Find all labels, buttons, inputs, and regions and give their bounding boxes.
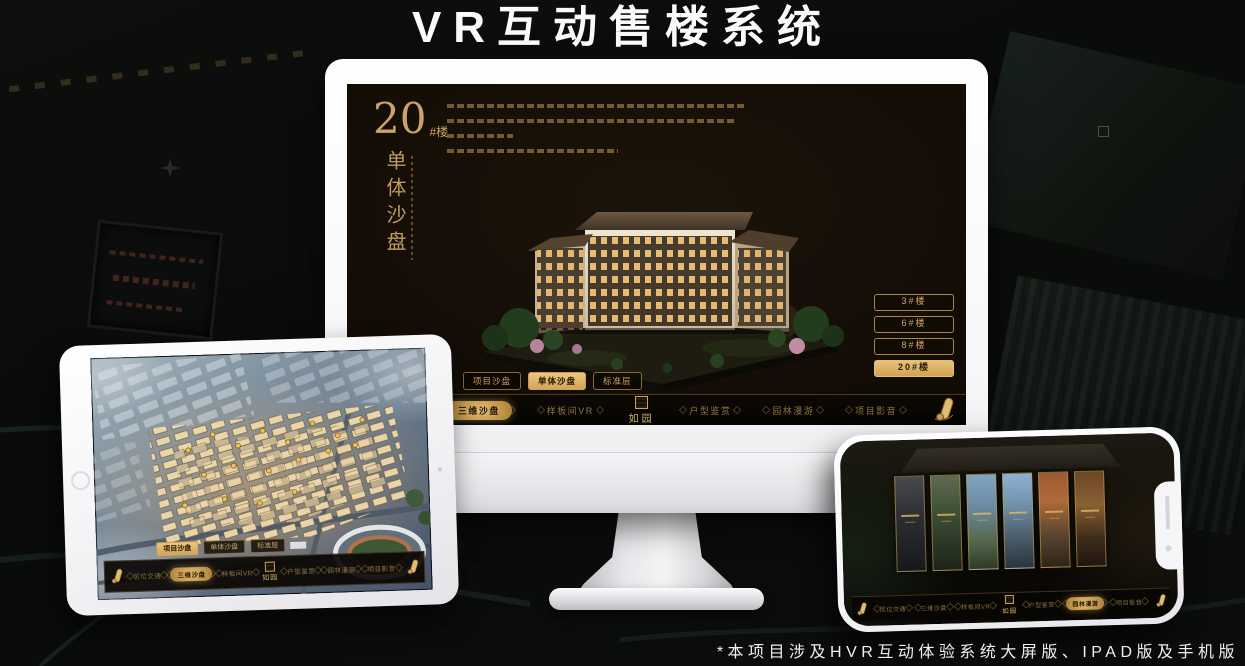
subtab-standard-floor[interactable]: 标准层: [250, 538, 285, 553]
subtab-standard-floor[interactable]: 标准层: [593, 372, 642, 390]
brand-logo: 如园: [1002, 595, 1018, 615]
subtab-single-sandbox[interactable]: 单体沙盘: [203, 539, 245, 554]
nav-showroom-vr[interactable]: 样板间VR: [219, 565, 256, 580]
description-text: [447, 104, 747, 164]
scroll-icon[interactable]: [405, 558, 421, 576]
scene-panel[interactable]: [1038, 471, 1071, 568]
scene-panel[interactable]: [966, 473, 999, 570]
nav-location-traffic[interactable]: 区位交通: [877, 601, 909, 615]
scale-indicator: [290, 541, 306, 548]
seal-icon: [265, 561, 275, 571]
nav-unit-appreciation[interactable]: 户型鉴赏: [284, 563, 318, 578]
nav-project-media[interactable]: 项目影音: [1113, 595, 1145, 609]
nav-showroom-vr[interactable]: 样板间VR: [541, 401, 600, 420]
floor-button-8[interactable]: 8#楼: [874, 338, 954, 355]
seal-icon: [635, 396, 648, 409]
camera-dot: [1165, 545, 1171, 551]
monitor-base: [549, 588, 764, 610]
nav-location-traffic[interactable]: 区位交通: [130, 568, 164, 583]
footer-note: *本项目涉及HVR互动体验系统大屏版、IPAD版及手机版: [717, 638, 1239, 662]
block-heading: 20 #楼: [373, 98, 448, 140]
ipad-device: 项目沙盘 单体沙盘 标准层 区位交通 三维沙盘 样板间VR 如园 户型鉴赏 园林…: [59, 334, 459, 616]
floor-selector: 3#楼 6#楼 8#楼 20#楼: [874, 294, 954, 377]
floor-button-20[interactable]: 20#楼: [874, 360, 954, 377]
brand-logo: 如园: [262, 561, 279, 582]
block-subtitle: 单体沙盘: [381, 150, 410, 258]
scene-panel[interactable]: [930, 474, 963, 571]
nav-project-media[interactable]: 项目影音: [364, 561, 398, 576]
sandbox-sub-tabs: 项目沙盘 单体沙盘 标准层: [463, 372, 642, 390]
nav-3d-sandbox[interactable]: 三维沙盘: [446, 401, 512, 420]
page-title: VR互动售楼系统: [0, 0, 1245, 56]
brand-logo: 如园: [629, 396, 655, 425]
speaker-icon: [1165, 495, 1170, 529]
promo-canvas: VR互动售楼系统 20 #楼 单体沙盘: [0, 0, 1245, 666]
nav-3d-sandbox[interactable]: 三维沙盘: [917, 600, 949, 614]
scene-panels: [894, 470, 1107, 572]
scene-panel[interactable]: [1074, 470, 1107, 567]
block-suffix: #楼: [429, 123, 448, 140]
subtab-project-sandbox[interactable]: 项目沙盘: [463, 372, 521, 390]
nav-unit-appreciation[interactable]: 户型鉴赏: [1026, 597, 1058, 611]
floor-button-3[interactable]: 3#楼: [874, 294, 954, 311]
nav-garden-roam[interactable]: 园林漫游: [324, 562, 358, 577]
scene-panel[interactable]: [1002, 472, 1035, 569]
building-render: [467, 156, 857, 391]
ipad-app: 项目沙盘 单体沙盘 标准层 区位交通 三维沙盘 样板间VR 如园 户型鉴赏 园林…: [90, 348, 432, 600]
subtitle-divider: [411, 156, 413, 260]
phone-navbar: 区位交通 三维沙盘 样板间VR 如园 户型鉴赏 园林漫游 项目影音: [852, 588, 1171, 622]
scroll-icon[interactable]: [932, 397, 956, 423]
scroll-icon[interactable]: [109, 567, 125, 585]
subtab-project-sandbox[interactable]: 项目沙盘: [156, 541, 198, 556]
home-button[interactable]: [71, 471, 91, 491]
phone-device: 区位交通 三维沙盘 样板间VR 如园 户型鉴赏 园林漫游 项目影音: [833, 426, 1184, 633]
nav-garden-roam[interactable]: 园林漫游: [766, 401, 820, 420]
seal-icon: [1005, 595, 1014, 604]
block-number: 20: [373, 98, 426, 140]
nav-unit-appreciation[interactable]: 户型鉴赏: [683, 401, 737, 420]
scroll-icon[interactable]: [855, 601, 868, 617]
subtab-single-sandbox[interactable]: 单体沙盘: [528, 372, 586, 390]
nav-project-media[interactable]: 项目影音: [849, 401, 903, 420]
nav-garden-roam[interactable]: 园林漫游: [1066, 596, 1104, 610]
phone-notch: [1154, 481, 1183, 570]
phone-app: 区位交通 三维沙盘 样板间VR 如园 户型鉴赏 园林漫游 项目影音: [839, 432, 1178, 626]
scroll-icon[interactable]: [1154, 593, 1167, 609]
nav-showroom-vr[interactable]: 样板间VR: [958, 599, 993, 613]
camera-dot: [438, 467, 442, 471]
interior-beam: [900, 443, 1121, 473]
nav-3d-sandbox[interactable]: 三维沙盘: [170, 567, 212, 582]
scene-panel[interactable]: [894, 475, 927, 572]
floor-button-6[interactable]: 6#楼: [874, 316, 954, 333]
